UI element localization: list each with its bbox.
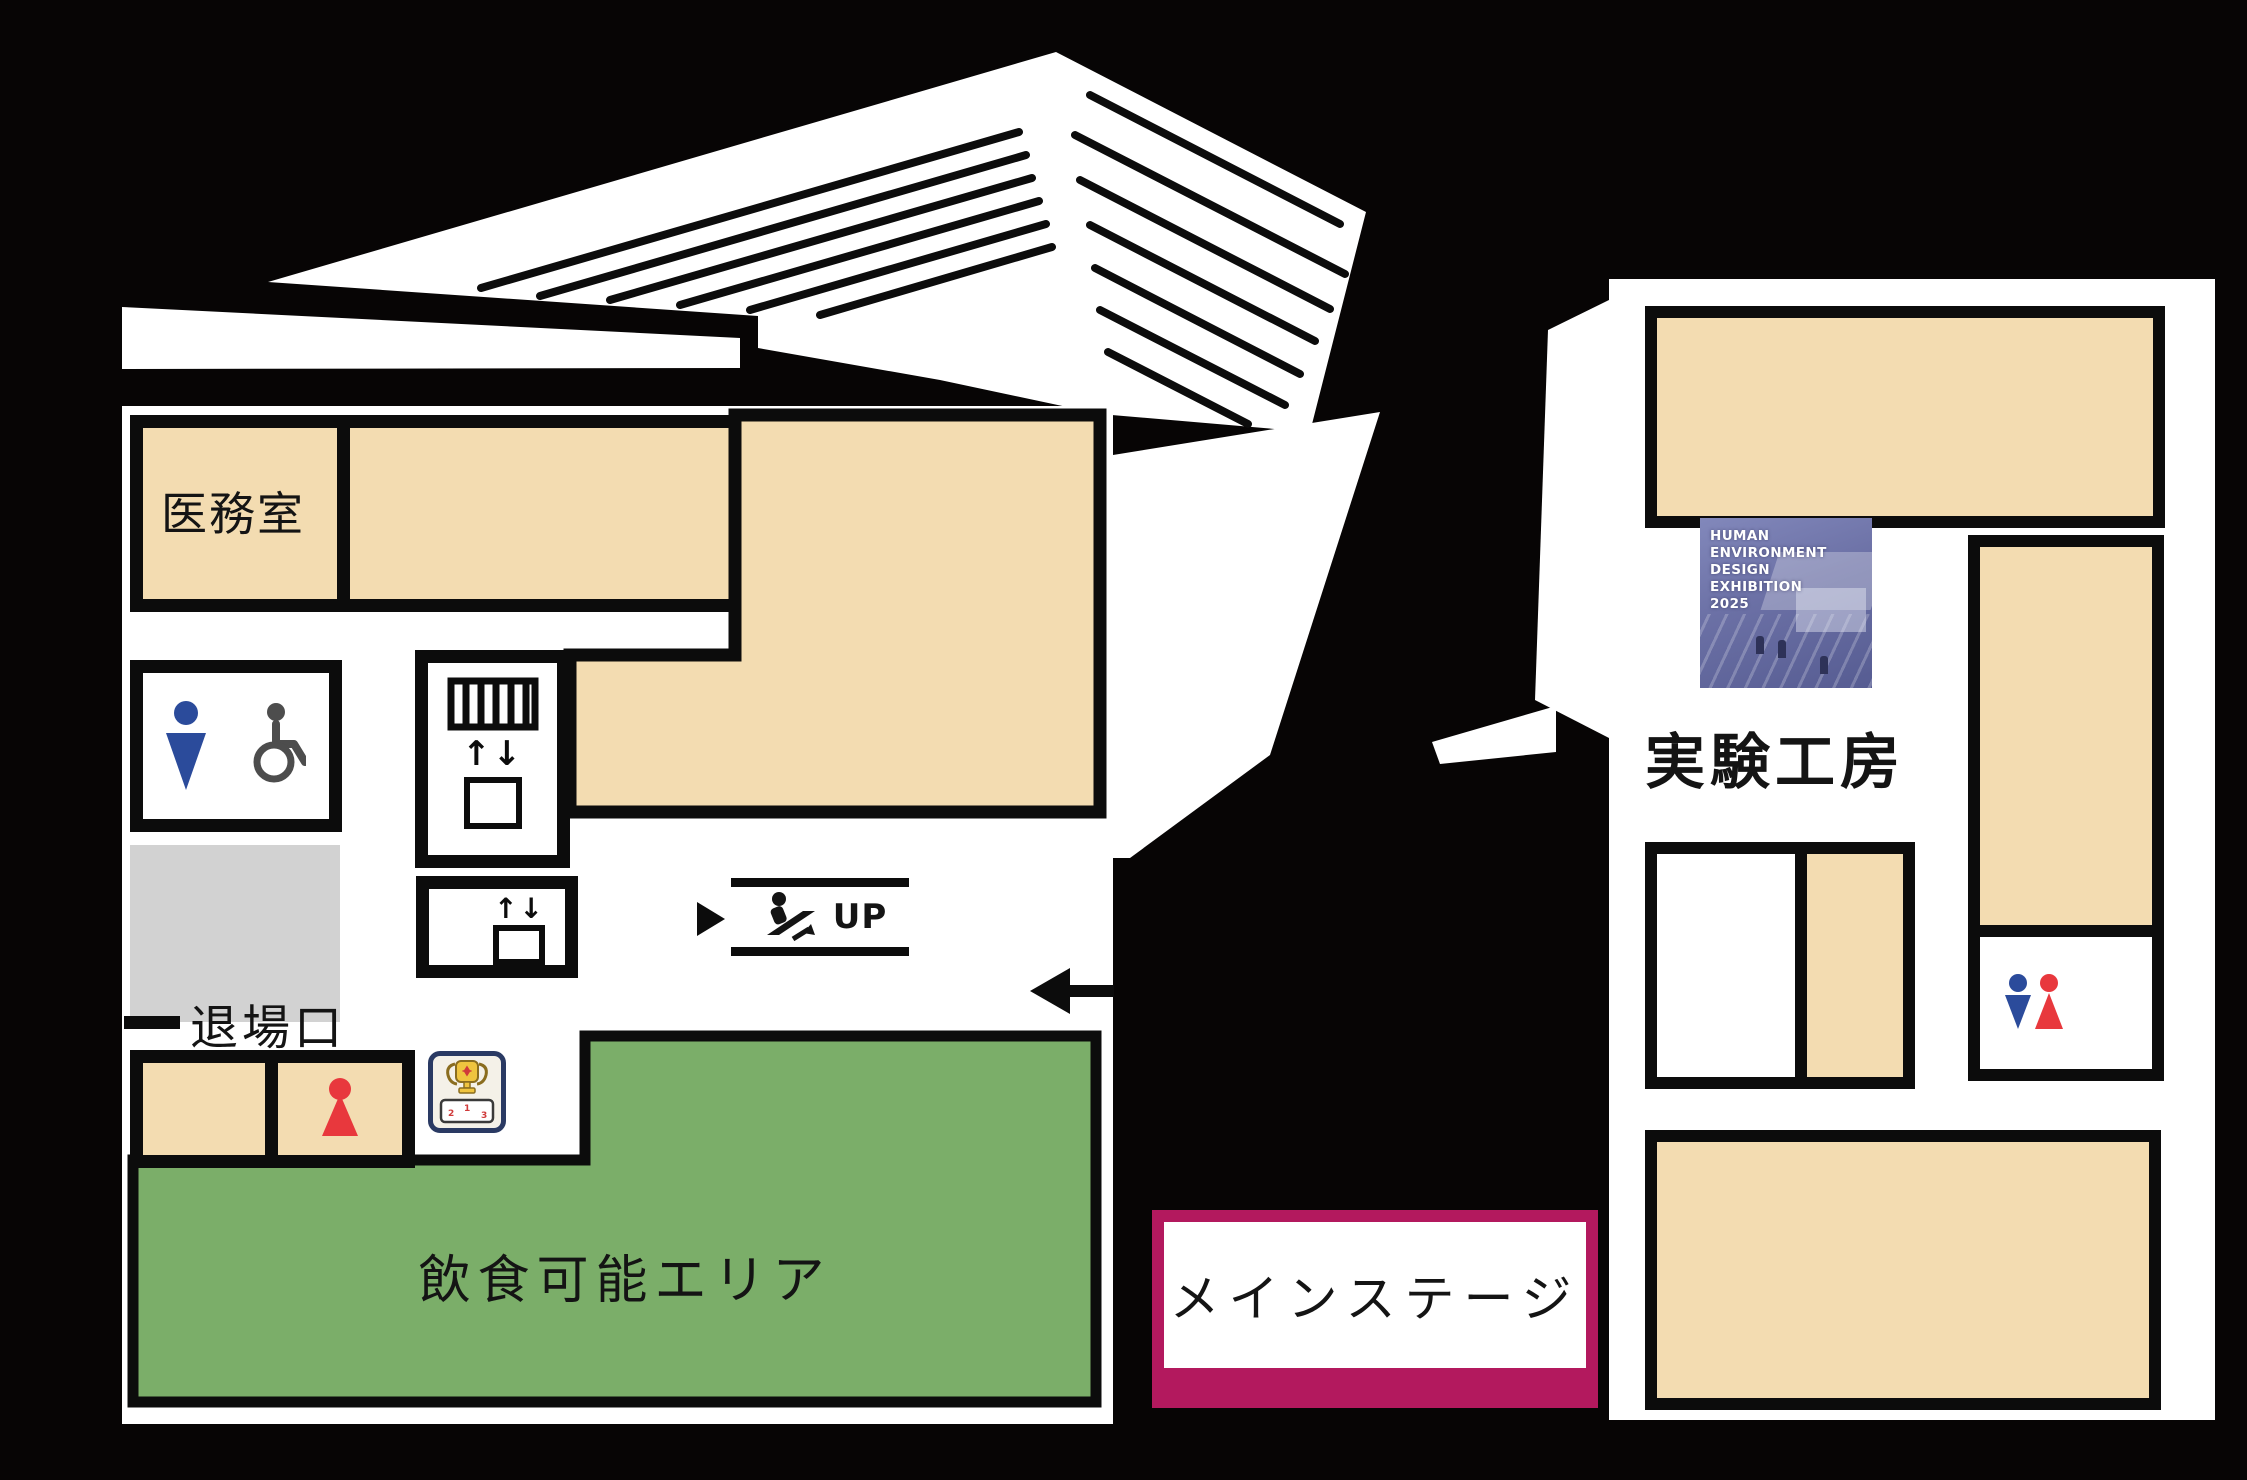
poster-line: EXHIBITION bbox=[1710, 579, 1827, 596]
room-right-split-tan bbox=[1807, 854, 1903, 1077]
room-right-split bbox=[1645, 842, 1915, 1089]
poster-title: HUMAN ENVIRONMENT DESIGN EXHIBITION 2025 bbox=[1710, 528, 1827, 613]
elevator-car-icon bbox=[493, 925, 545, 965]
room-right-column-storage bbox=[1980, 547, 2152, 925]
room-right-top bbox=[1645, 306, 2165, 528]
main-stage-label: メインステージ bbox=[1170, 1259, 1581, 1331]
exit-label: 退場口 bbox=[190, 988, 346, 1058]
podium-first: 1 bbox=[464, 1104, 470, 1114]
room-womens-toilet bbox=[265, 1050, 415, 1168]
escalator-direction-triangle-icon bbox=[697, 902, 725, 936]
room-right-column bbox=[1968, 535, 2164, 1081]
entrance-arrow-left-icon bbox=[1030, 966, 1114, 1016]
poster-line: HUMAN bbox=[1710, 528, 1827, 545]
mens-toilet-icon bbox=[166, 700, 206, 792]
room-unisex-restroom bbox=[1980, 937, 2152, 1069]
escalator-up-label: UP bbox=[833, 897, 888, 937]
podium-second: 2 bbox=[448, 1109, 454, 1119]
elevator-arrows-icon: ↑↓ bbox=[462, 737, 523, 771]
room-right-bottom bbox=[1645, 1130, 2161, 1410]
room-restroom-accessible bbox=[130, 660, 342, 832]
room-right-split-white bbox=[1657, 854, 1795, 1077]
workshop-label: 実験工房 bbox=[1645, 714, 1905, 801]
unisex-toilet-icon bbox=[2004, 973, 2070, 1033]
poster-line: ENVIRONMENT bbox=[1710, 545, 1827, 562]
exit-door-mark bbox=[124, 1016, 180, 1029]
stairs-icon bbox=[447, 677, 539, 731]
poster-figure bbox=[1778, 640, 1786, 658]
escalator-badge: UP bbox=[731, 878, 909, 956]
room-right-L bbox=[570, 415, 1100, 812]
poster-figure bbox=[1820, 656, 1828, 674]
elevator-car-icon bbox=[464, 777, 522, 829]
wall-divider bbox=[1795, 854, 1807, 1077]
poster-figure bbox=[1756, 636, 1764, 654]
room-bottom-left bbox=[130, 1050, 278, 1168]
main-stage-panel: メインステージ bbox=[1164, 1222, 1586, 1368]
poster-line: DESIGN bbox=[1710, 562, 1827, 579]
womens-toilet-icon bbox=[320, 1078, 360, 1140]
poster-line: 2025 bbox=[1710, 596, 1827, 613]
elevator-arrows-icon: ↑↓ bbox=[494, 895, 545, 923]
award-podium-badge: 2 1 3 bbox=[428, 1051, 506, 1133]
room-stairs-elevator: ↑↓ bbox=[415, 650, 570, 868]
food-area-label: 飲食可能エリア bbox=[390, 1238, 860, 1313]
wall-divider bbox=[1980, 925, 2152, 937]
trophy-icon: 2 1 3 bbox=[433, 1056, 501, 1128]
exhibition-poster: HUMAN ENVIRONMENT DESIGN EXHIBITION 2025 bbox=[1700, 518, 1872, 688]
room-elevator-2: ↑↓ bbox=[416, 876, 578, 978]
wheelchair-icon bbox=[250, 700, 306, 792]
escalator-up-icon bbox=[753, 891, 821, 943]
venue-floor-map: 医務室 ↑↓ ↑↓ bbox=[0, 0, 2247, 1480]
podium-third: 3 bbox=[481, 1111, 487, 1121]
main-stage: メインステージ bbox=[1152, 1210, 1598, 1408]
